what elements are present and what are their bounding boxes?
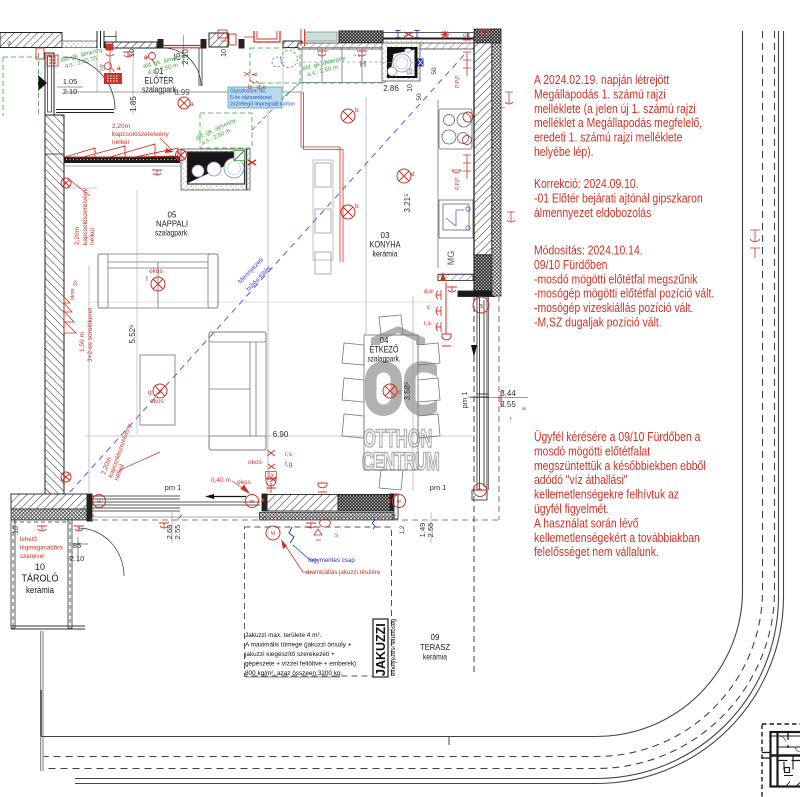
svg-text:helyébe lép).: helyébe lép). <box>534 146 594 159</box>
svg-text:TÁROLÓ: TÁROLÓ <box>22 572 59 585</box>
svg-text:10: 10 <box>129 49 136 57</box>
svg-text:szalagpark.: szalagpark. <box>368 354 401 364</box>
svg-text:P,P,P: P,P,P <box>455 177 461 190</box>
svg-text:5-ös vázszerkezet: 5-ös vázszerkezet <box>230 95 272 101</box>
svg-text:1,2: 1,2 <box>400 525 406 534</box>
svg-text:kellemetlenségekért a továbbia: kellemetlenségekért a továbbiakban <box>534 532 700 545</box>
svg-text:kerámia: kerámia <box>26 585 55 596</box>
svg-text:b: b <box>248 84 252 91</box>
svg-text:pm 1: pm 1 <box>165 483 182 492</box>
svg-text:1,50 m: 1,50 m <box>79 332 86 352</box>
svg-text:a: a <box>190 101 194 108</box>
svg-text:pm 1: pm 1 <box>460 392 469 409</box>
svg-text:r,s: r,s <box>285 451 293 458</box>
svg-text:CENTRUM: CENTRUM <box>362 449 439 476</box>
svg-text:a: a <box>479 303 483 310</box>
svg-text:09: 09 <box>431 633 440 642</box>
svg-text:-M,SZ dugaljak pozíció vált.: -M,SZ dugaljak pozíció vált. <box>534 317 662 330</box>
svg-text:50: 50 <box>431 67 438 75</box>
svg-text:2.55: 2.55 <box>426 523 435 538</box>
svg-text:ügyfél figyelmét.: ügyfél figyelmét. <box>534 503 609 516</box>
svg-text:2.86: 2.86 <box>383 84 399 93</box>
svg-text:b: b <box>355 203 359 210</box>
svg-text:2,20m: 2,20m <box>112 123 130 130</box>
svg-text:kerámia: kerámia <box>373 249 398 259</box>
svg-text:d: d <box>411 171 415 178</box>
svg-text:H: H <box>360 59 367 69</box>
svg-text:1.85: 1.85 <box>129 96 138 112</box>
svg-text:2.10: 2.10 <box>63 87 78 96</box>
svg-text:elhelyezési lehetőség: elhelyezési lehetőség <box>391 619 397 676</box>
svg-text:jakuzzi kiegészítő szerekezeti: jakuzzi kiegészítő szerekezeti + <box>244 651 335 658</box>
svg-text:800 kg/m², azaz összeen 3200 k: 800 kg/m², azaz összeen 3200 kg. <box>245 670 343 677</box>
svg-text:pm 1: pm 1 <box>430 483 447 492</box>
svg-text:2x: 2x <box>73 280 79 286</box>
svg-text:10: 10 <box>407 84 414 92</box>
svg-text:10: 10 <box>35 562 45 572</box>
svg-text:felelősséget nem vállalunk.: felelősséget nem vállalunk. <box>534 546 659 559</box>
svg-text:kapcsolószerelvény: kapcsolószerelvény <box>82 188 89 245</box>
svg-text:2.10: 2.10 <box>70 554 85 563</box>
svg-text:szalagpark: szalagpark <box>142 85 176 95</box>
svg-text:f: f <box>146 276 148 283</box>
svg-text:TERASZ: TERASZ <box>420 642 451 652</box>
svg-text:R: R <box>97 499 101 505</box>
svg-text:5.52⁵: 5.52⁵ <box>128 325 137 344</box>
svg-text:P,P,P: P,P,P <box>455 75 461 88</box>
svg-text:nélkül: nélkül <box>112 139 130 146</box>
svg-text:r: r <box>510 416 512 422</box>
svg-text:-mosógép mögötti előtétfal poz: -mosógép mögötti előtétfal pozíció vált. <box>534 288 714 301</box>
svg-text:g: g <box>148 389 152 396</box>
svg-text:A 2024.02.19. napján létrejött: A 2024.02.19. napján létrejött <box>534 74 670 87</box>
svg-text:szerelve!: szerelve! <box>20 553 45 560</box>
svg-text:8.99: 8.99 <box>174 88 190 97</box>
svg-text:3.21⁵: 3.21⁵ <box>403 194 412 213</box>
svg-text:uk: uk <box>522 406 528 411</box>
svg-text:melléklet a Megállapodás megfe: melléklet a Megállapodás megfelelő, <box>534 117 702 130</box>
svg-text:3.58⁵: 3.58⁵ <box>403 382 412 401</box>
svg-text:2,20m: 2,20m <box>74 227 81 245</box>
svg-text:legmagasabbra: legmagasabbra <box>20 545 63 552</box>
svg-text:-mosógép vizeskiállás pozíció: -mosógép vizeskiállás pozíció vált. <box>534 302 693 315</box>
svg-text:eredeti 1. számú rajzi mellékl: eredeti 1. számú rajzi melléklete <box>534 132 682 145</box>
svg-text:d,e: d,e <box>424 288 433 295</box>
svg-text:85: 85 <box>73 541 81 550</box>
svg-text:a: a <box>117 65 121 72</box>
svg-text:R: R <box>478 488 482 494</box>
svg-text:2.55: 2.55 <box>173 525 182 540</box>
svg-text:6.90: 6.90 <box>273 430 289 439</box>
svg-text:f,g: f,g <box>285 461 293 468</box>
svg-text:10: 10 <box>13 526 20 534</box>
svg-text:Jakuzzi max. területe 4 m².: Jakuzzi max. területe 4 m². <box>245 632 322 639</box>
svg-text:megszüntettük a későbbiekben e: megszüntettük a későbbiekben ebből <box>534 460 706 473</box>
svg-text:M: M <box>271 531 275 537</box>
svg-text:MG: MG <box>446 251 456 266</box>
svg-text:0,40 m: 0,40 m <box>211 477 231 484</box>
svg-text:áramkiállás jakuzzi részére: áramkiállás jakuzzi részére <box>306 569 381 576</box>
svg-text:Módosítás: 2024.10.14.: Módosítás: 2024.10.14. <box>534 245 643 258</box>
svg-text:2x2rétegű impregnált karton: 2x2rétegű impregnált karton <box>230 102 295 108</box>
svg-text:lehető: lehető <box>20 536 37 543</box>
svg-text:okos: okos <box>70 288 76 300</box>
svg-text:fagymentes csap: fagymentes csap <box>308 557 355 564</box>
svg-text:-01 Előtér bejárati ajtónál gi: -01 Előtér bejárati ajtónál gipszkaron <box>534 193 703 206</box>
svg-text:-mosdó mögötti előtétfal megsz: -mosdó mögötti előtétfal megszűnik <box>534 273 698 286</box>
svg-text:JAKUZZI: JAKUZZI <box>374 623 388 676</box>
svg-text:gépészete + vízzel feltöltve +: gépészete + vízzel feltöltve + emberek) <box>245 661 356 668</box>
svg-text:melléklete (a jelen új 1. szám: melléklete (a jelen új 1. számú rajzi <box>534 103 696 116</box>
svg-text:okos: okos <box>150 398 164 405</box>
svg-text:A maximális tömege (jakuzzi ön: A maximális tömege (jakuzzi önsúly + <box>245 642 352 649</box>
svg-text:mosdó mögötti előtétfalat: mosdó mögötti előtétfalat <box>534 446 651 459</box>
svg-text:kapcsolószerelvény: kapcsolószerelvény <box>112 131 169 138</box>
svg-text:álmennyezet eldobozolás: álmennyezet eldobozolás <box>534 207 651 220</box>
svg-text:09/10 Fürdőben: 09/10 Fürdőben <box>534 259 607 272</box>
svg-text:d,e: d,e <box>257 84 266 91</box>
svg-text:nélkül: nélkül <box>89 227 96 245</box>
svg-text:3+2-es sorolókeret: 3+2-es sorolókeret <box>87 308 94 362</box>
svg-text:50: 50 <box>416 93 423 101</box>
svg-text:Ügyfél kérésére a 09/10 Fürdőb: Ügyfél kérésére a 09/10 Fürdőben a <box>534 431 701 444</box>
svg-text:szalagpark.: szalagpark. <box>155 228 189 238</box>
svg-text:ok: ok <box>463 32 471 39</box>
svg-text:Megállapodás 1. számú rajzi: Megállapodás 1. számú rajzi <box>534 89 666 102</box>
svg-text:or: or <box>250 499 255 505</box>
svg-text:10: 10 <box>221 49 228 57</box>
svg-text:or: or <box>397 499 402 505</box>
svg-text:kerámia: kerámia <box>423 653 447 662</box>
svg-text:Korrekció: 2024.09.10.: Korrekció: 2024.09.10. <box>534 178 639 191</box>
svg-text:okos: okos <box>248 459 262 466</box>
svg-text:adódó "víz áthallási": adódó "víz áthallási" <box>534 474 627 487</box>
svg-text:kellemetlenségekre felhívtuk a: kellemetlenségekre felhívtuk az <box>534 489 679 502</box>
svg-text:3.44: 3.44 <box>500 389 516 398</box>
svg-text:r,s: r,s <box>424 320 432 327</box>
svg-text:b: b <box>355 107 359 114</box>
svg-text:okos: okos <box>149 268 163 275</box>
svg-text:A használat során lévő: A használat során lévő <box>534 518 639 531</box>
svg-text:1.05: 1.05 <box>63 77 78 86</box>
